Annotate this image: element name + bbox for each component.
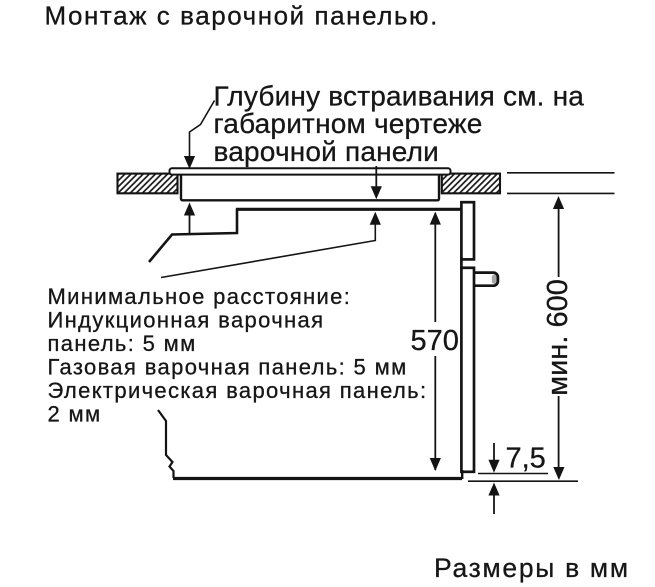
svg-text:варочной панели: варочной панели — [214, 136, 440, 167]
svg-text:мин. 600: мин. 600 — [542, 279, 574, 396]
svg-text:Индукционная варочная: Индукционная варочная — [48, 308, 325, 333]
svg-text:2 мм: 2 мм — [48, 402, 102, 427]
svg-text:Газовая варочная панель: 5 мм: Газовая варочная панель: 5 мм — [48, 355, 408, 380]
svg-text:панель: 5 мм: панель: 5 мм — [48, 331, 197, 356]
svg-text:7,5: 7,5 — [506, 443, 546, 475]
svg-text:570: 570 — [411, 325, 459, 357]
svg-text:Электрическая варочная панель:: Электрическая варочная панель: — [48, 378, 428, 403]
svg-text:Минимальное расстояние:: Минимальное расстояние: — [48, 284, 352, 309]
svg-text:Глубину встраивания см. на: Глубину встраивания см. на — [214, 80, 585, 111]
svg-text:Размеры в мм: Размеры в мм — [434, 553, 630, 583]
svg-text:габаритном чертеже: габаритном чертеже — [214, 108, 483, 139]
svg-text:Монтаж с варочной панелью.: Монтаж с варочной панелью. — [45, 1, 439, 31]
